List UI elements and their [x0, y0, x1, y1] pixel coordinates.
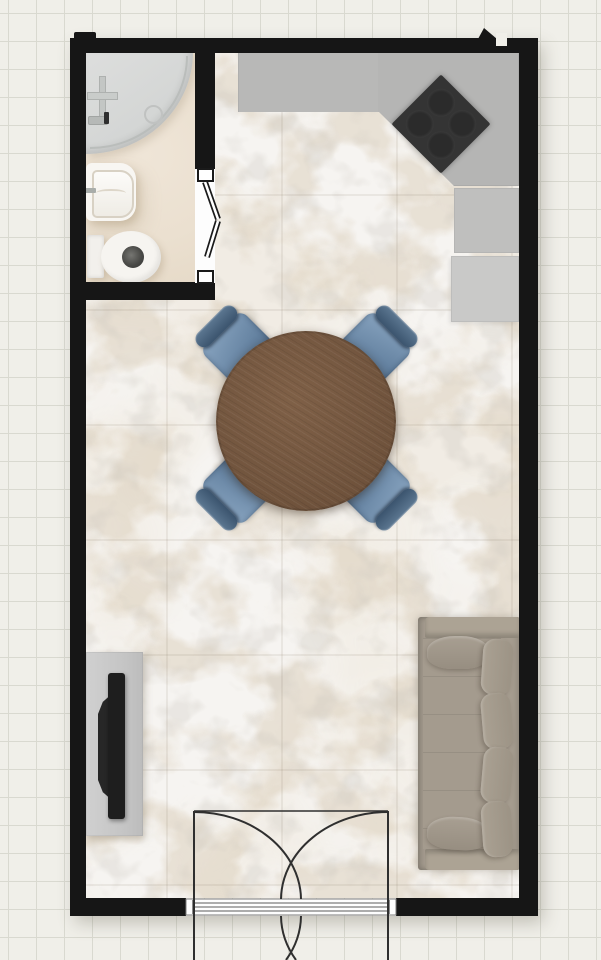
- door-swing-arc-right-outside: [281, 916, 296, 960]
- kitchen-base-cabinet[interactable]: [454, 188, 519, 253]
- toilet-bowl-hole: [122, 246, 144, 268]
- bathroom-partition-stub[interactable]: [195, 282, 215, 300]
- wall-notch-gap: [496, 33, 507, 46]
- tv[interactable]: [108, 673, 125, 819]
- wall-bottom-left-segment[interactable]: [70, 898, 186, 916]
- door-swing-arc-left-outside: [286, 916, 301, 960]
- shower-valve-handle-icon: [87, 92, 118, 100]
- sofa-seat-cushion: [427, 636, 489, 669]
- wall-bottom-right-segment[interactable]: [396, 898, 538, 916]
- bathroom-bottom-wall[interactable]: [70, 282, 195, 300]
- sofa[interactable]: [418, 617, 520, 870]
- bathroom-partition-wall[interactable]: [195, 38, 215, 169]
- dining-table[interactable]: [216, 331, 396, 511]
- wall-notch-artifact: [478, 28, 497, 39]
- floorplan-canvas: [0, 0, 601, 960]
- sofa-back-pillow: [480, 692, 515, 750]
- bathroom-doorway[interactable]: [195, 169, 215, 283]
- shower-tap-handle-icon: [104, 112, 109, 124]
- table-wood-grain: [216, 331, 396, 511]
- wash-basin-detail: [96, 189, 126, 197]
- sofa-back-pillow: [480, 638, 514, 696]
- wall-corner-artifact: [74, 32, 96, 40]
- sofa-armrest-top: [425, 617, 520, 638]
- sofa-back-pillow: [480, 746, 515, 804]
- refrigerator[interactable]: [451, 256, 519, 322]
- kitchen-counter-highlight: [238, 52, 378, 112]
- sofa-back-pillow: [480, 800, 514, 858]
- wall-top[interactable]: [70, 38, 538, 53]
- shower-drain-icon: [144, 105, 163, 124]
- wall-right[interactable]: [519, 38, 538, 916]
- wall-left[interactable]: [70, 38, 86, 916]
